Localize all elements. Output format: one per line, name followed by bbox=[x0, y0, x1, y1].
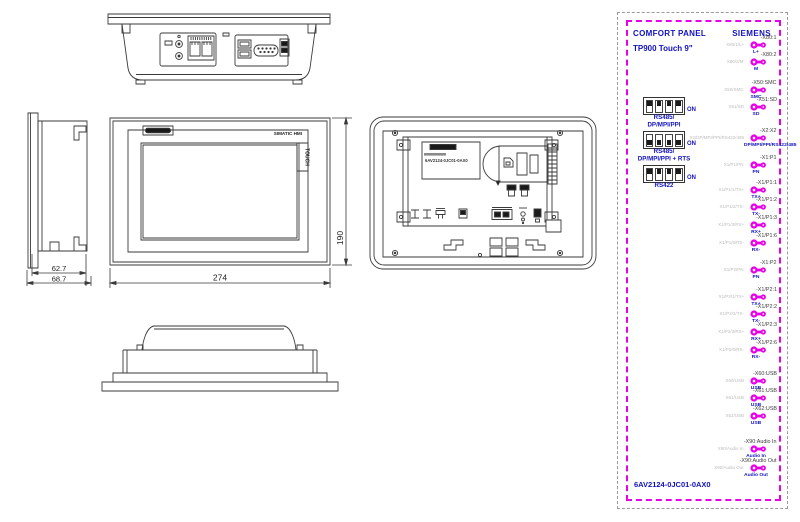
slot-mark bbox=[223, 33, 229, 36]
connector-ref: X51/SD bbox=[728, 104, 744, 109]
connector-ref: X90/Audio In bbox=[718, 446, 744, 451]
battery-compartment bbox=[483, 144, 557, 196]
memory-card-icon bbox=[504, 158, 513, 167]
housing-side-walls bbox=[123, 350, 317, 373]
depth-dimensions: 62.7 68.7 bbox=[27, 254, 91, 286]
connector-signal: Audio Out bbox=[744, 472, 768, 477]
connector-ref: X1/P1/3/RX+ bbox=[718, 222, 744, 227]
connector-row: X2/DP/MPI/PPI/RS422/485-X2:X2DP/MPI/PPI/… bbox=[616, 128, 778, 149]
connector-ref: X80/2/M bbox=[727, 59, 744, 64]
width-dimension-label: 274 bbox=[213, 273, 227, 283]
port-symbols-row bbox=[411, 208, 541, 224]
order-number: 6AV2124-0JC01-0AX0 bbox=[634, 480, 711, 489]
connector-ref: X1/P1/PN bbox=[724, 162, 744, 167]
left-connector-group bbox=[160, 33, 216, 66]
connection-panel: COMFORT PANEL TP900 Touch 9" SIEMENS ONR… bbox=[616, 10, 794, 512]
connector-row: X1/P1/6/RX--X1/P1:6RX- bbox=[616, 233, 778, 254]
connector-ref: X1/P1/6/RX- bbox=[719, 240, 744, 245]
svg-text:TOUCH: TOUCH bbox=[304, 148, 310, 166]
depth-body-dimension: 62.7 bbox=[52, 264, 67, 273]
mini-port bbox=[165, 41, 172, 45]
db9-connector bbox=[254, 45, 278, 56]
connector-row: X51/SD-X51:SDSD bbox=[616, 97, 778, 118]
connector-signal: M bbox=[744, 66, 768, 71]
connector-ref: X1/P2/3/RX+ bbox=[718, 329, 744, 334]
siemens-logo bbox=[143, 126, 173, 135]
connector-signal: USB bbox=[744, 420, 768, 425]
connector-signal: DP/MPI/PPI/RS422/485 bbox=[744, 142, 768, 147]
depth-total-dimension: 68.7 bbox=[52, 275, 67, 284]
housing-body bbox=[122, 24, 316, 84]
connector-ref: X62/USB bbox=[725, 413, 744, 418]
connector-row: X1/P2/PN-X1:P2PN bbox=[616, 260, 778, 281]
connector-ref: X1/P2/6/RX- bbox=[719, 347, 744, 352]
side-view-drawing: 62.7 68.7 bbox=[14, 104, 102, 294]
connector-signal: RX- bbox=[744, 247, 768, 252]
connector-signal: RX- bbox=[744, 354, 768, 359]
audio-jacks bbox=[176, 41, 183, 60]
technical-drawing-page: 62.7 68.7 SIMATIC HMI TOUCH bbox=[0, 0, 800, 522]
bottom-view-drawing bbox=[96, 310, 344, 398]
connector-ref: X80/1/L+ bbox=[726, 42, 744, 47]
connector-row: X62/USB-X62:USBUSB bbox=[616, 406, 778, 427]
connector-ref: X1/P2/1/TX+ bbox=[718, 294, 744, 299]
model-number-label: 6AV2124-0JC01-0AX0 bbox=[425, 158, 468, 163]
back-view-drawing: 6AV2124-0JC01-0AX0 bbox=[366, 108, 604, 276]
rj45-ports bbox=[188, 36, 214, 60]
connector-ref: X1/P2/PN bbox=[724, 267, 744, 272]
connector-ref: X60/USB bbox=[725, 378, 744, 383]
connector-ref: X1/P1/1/TX+ bbox=[718, 187, 744, 192]
front-view-drawing: SIMATIC HMI TOUCH 274 190 bbox=[106, 112, 358, 292]
usb-ports bbox=[238, 40, 251, 58]
bezel-plate bbox=[28, 113, 38, 268]
connector-ref: X1/P1/2/TX- bbox=[719, 204, 744, 209]
cable-plugs bbox=[507, 185, 529, 196]
connector-row: X80/2/M-X80:2M bbox=[616, 52, 778, 73]
connector-ref: X50/SMC bbox=[725, 87, 744, 92]
top-view-drawing bbox=[90, 4, 340, 96]
rating-label: 6AV2124-0JC01-0AX0 bbox=[422, 142, 480, 179]
screen bbox=[141, 143, 299, 240]
housing-dome bbox=[137, 326, 303, 350]
connector-ref: X90/Audio Out bbox=[715, 465, 744, 470]
width-dimension: 274 bbox=[110, 268, 330, 288]
mounting-clamp bbox=[74, 237, 86, 251]
height-dimension-label: 190 bbox=[335, 231, 345, 245]
corner-screws bbox=[392, 130, 562, 255]
connector-ref: X1/P2/2/TX- bbox=[719, 311, 744, 316]
connector-signal: SD bbox=[744, 111, 768, 116]
connector-signal: PN bbox=[744, 169, 768, 174]
bezel-bottom-edge bbox=[102, 373, 338, 391]
bottom-hooks bbox=[444, 238, 545, 257]
connector-ref: X61/USB bbox=[725, 395, 744, 400]
simatic-hmi-label: SIMATIC HMI bbox=[274, 131, 302, 136]
connector-row: X90/Audio Out-X90:Audio OutAudio Out bbox=[616, 458, 778, 479]
height-dimension: 190 bbox=[332, 118, 352, 265]
connector-ref: X2/DP/MPI/PPI/RS422/485 bbox=[689, 135, 744, 140]
housing-body bbox=[38, 121, 87, 251]
connector-row: X1/P2/6/RX--X1/P2:6RX- bbox=[616, 340, 778, 361]
bezel-top-edge bbox=[108, 14, 330, 33]
connector-row: X1/P1/PN-X1:P1PN bbox=[616, 155, 778, 176]
right-connector-group bbox=[235, 35, 289, 66]
connector-signal: PN bbox=[744, 274, 768, 279]
mounting-clamp bbox=[74, 126, 86, 140]
